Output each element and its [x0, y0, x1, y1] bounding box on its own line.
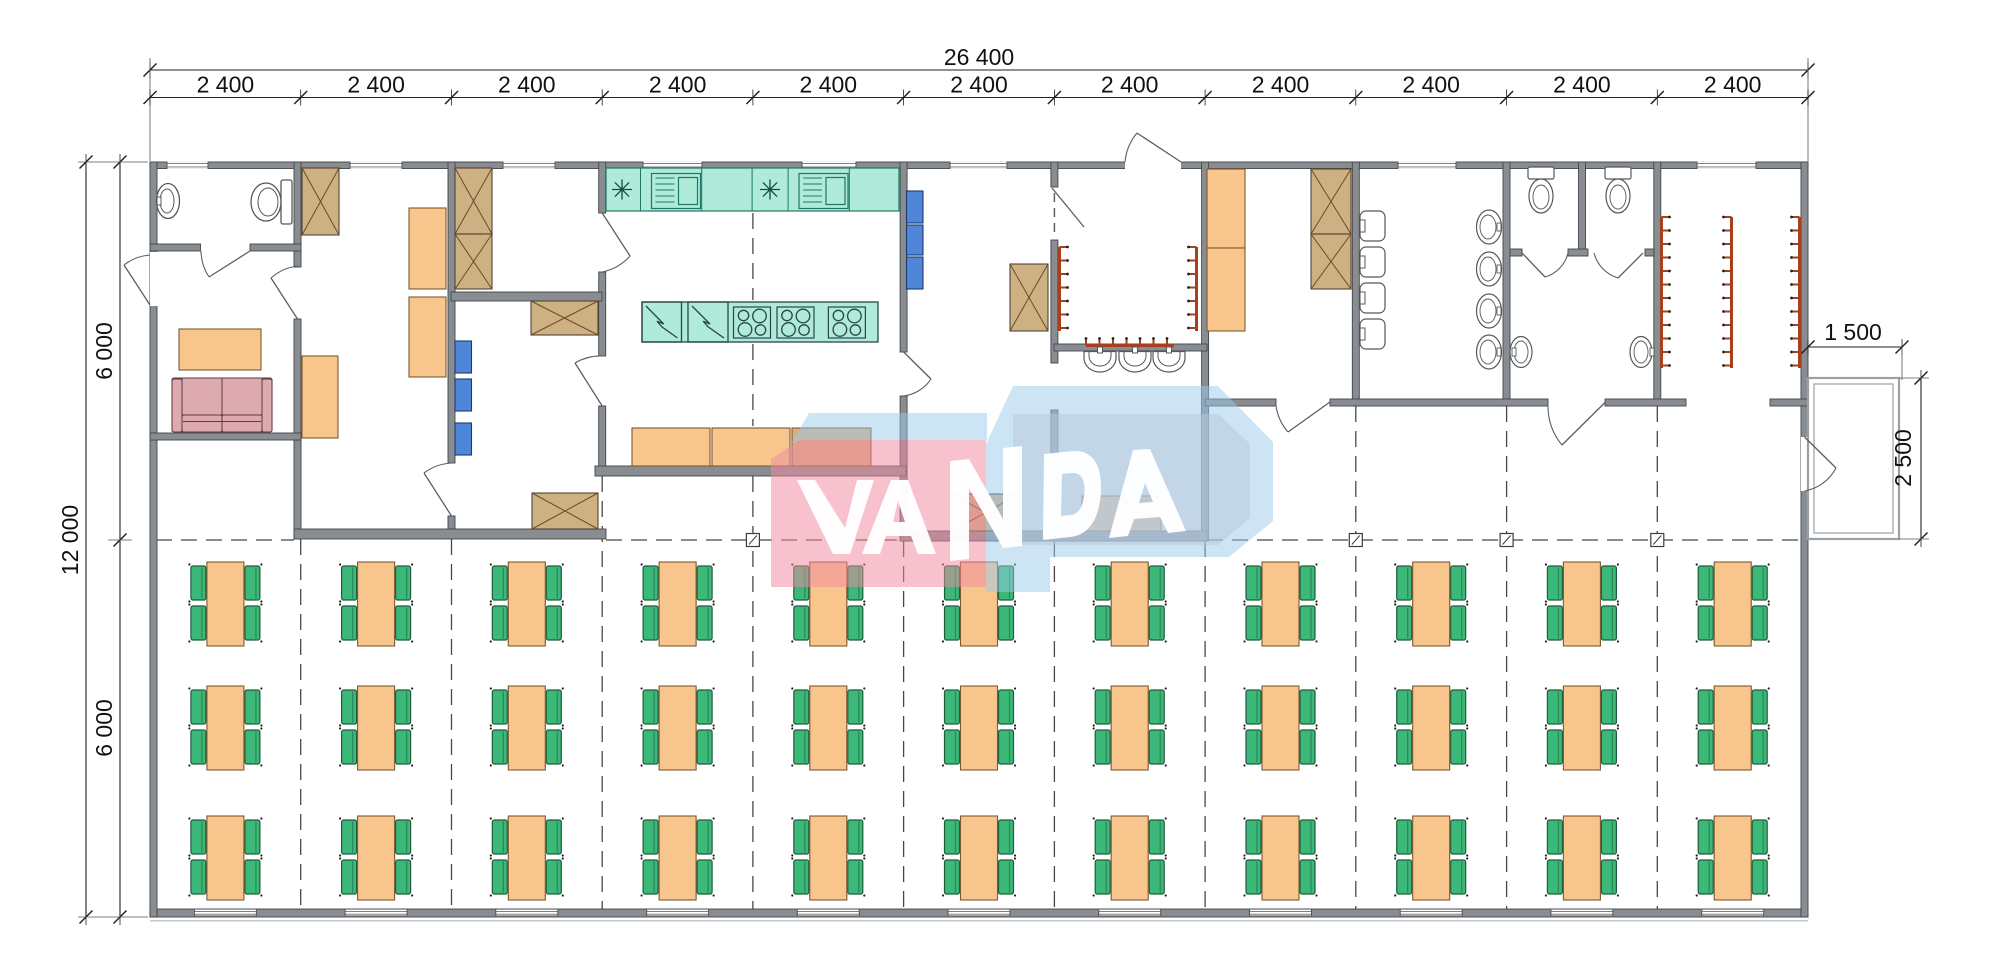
svg-text:6 000: 6 000 — [91, 699, 117, 757]
svg-text:2 400: 2 400 — [498, 72, 556, 98]
svg-text:2 400: 2 400 — [649, 72, 707, 98]
svg-text:2 400: 2 400 — [1252, 72, 1310, 98]
svg-text:1 500: 1 500 — [1824, 319, 1882, 345]
svg-text:2 400: 2 400 — [347, 72, 405, 98]
svg-text:2 500: 2 500 — [1890, 429, 1916, 487]
svg-text:2 400: 2 400 — [1704, 72, 1762, 98]
svg-text:12 000: 12 000 — [57, 505, 83, 575]
svg-text:26 400: 26 400 — [944, 44, 1014, 70]
svg-text:2 400: 2 400 — [800, 72, 858, 98]
svg-text:2 400: 2 400 — [1402, 72, 1460, 98]
svg-text:2 400: 2 400 — [1553, 72, 1611, 98]
svg-text:6 000: 6 000 — [91, 322, 117, 380]
svg-text:2 400: 2 400 — [197, 72, 255, 98]
svg-text:2 400: 2 400 — [950, 72, 1008, 98]
svg-text:2 400: 2 400 — [1101, 72, 1159, 98]
